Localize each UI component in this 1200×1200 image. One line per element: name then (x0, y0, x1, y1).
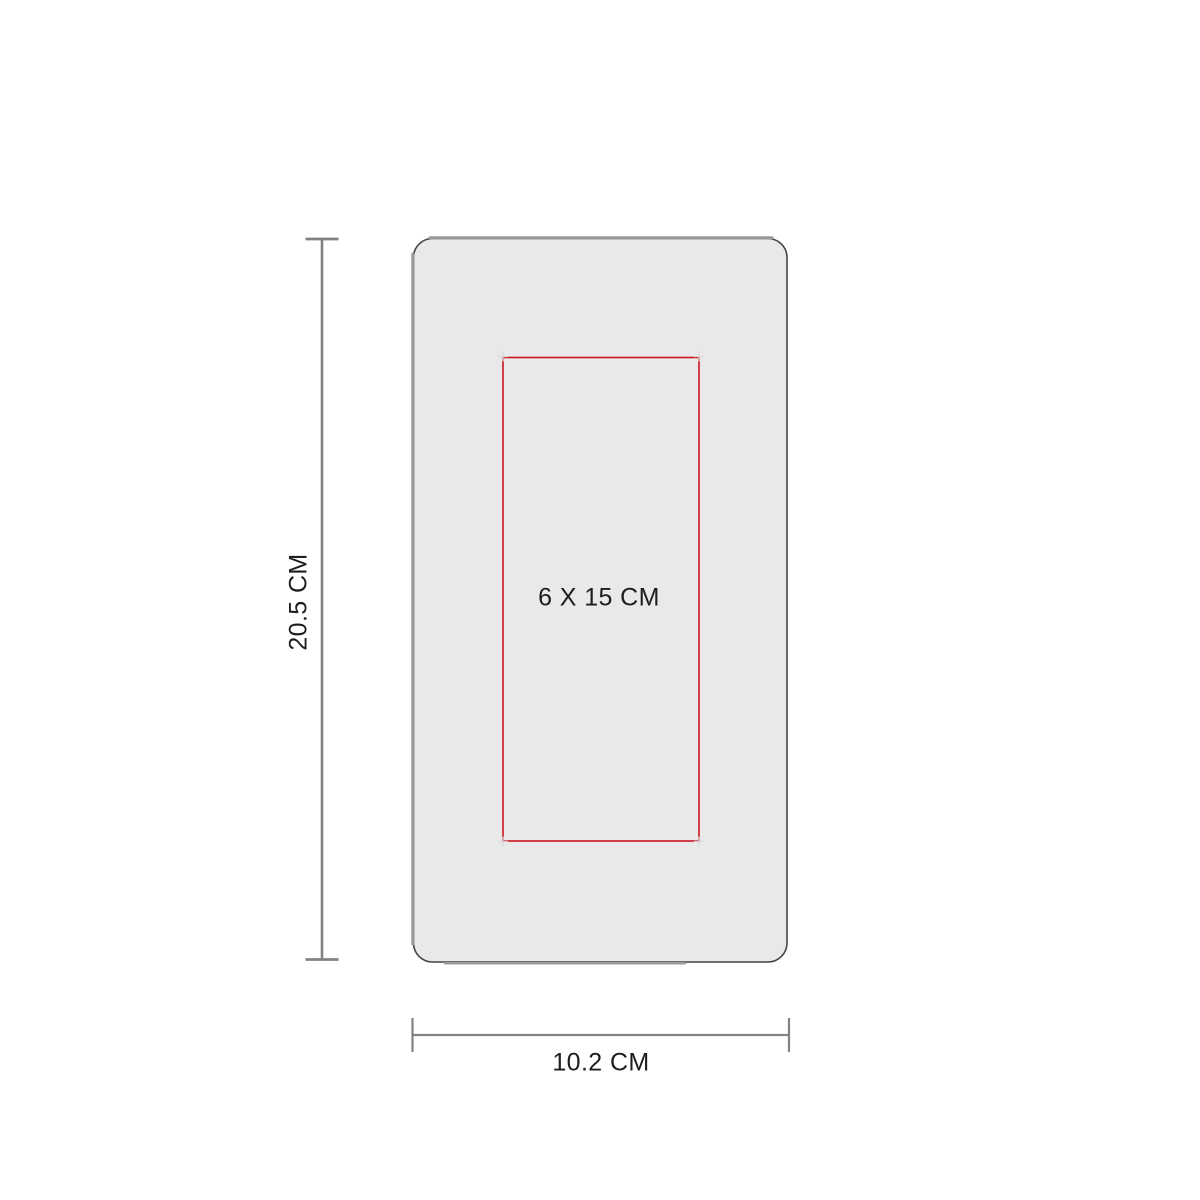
width-dimension-line (413, 1018, 790, 1052)
diagram-canvas: 20.5 CM 6 X 15 CM 10.2 CM (0, 0, 1200, 1200)
height-dimension-label: 20.5 CM (285, 553, 314, 650)
width-dimension-label: 10.2 CM (552, 1049, 649, 1078)
imprint-area-label: 6 X 15 CM (538, 584, 660, 613)
